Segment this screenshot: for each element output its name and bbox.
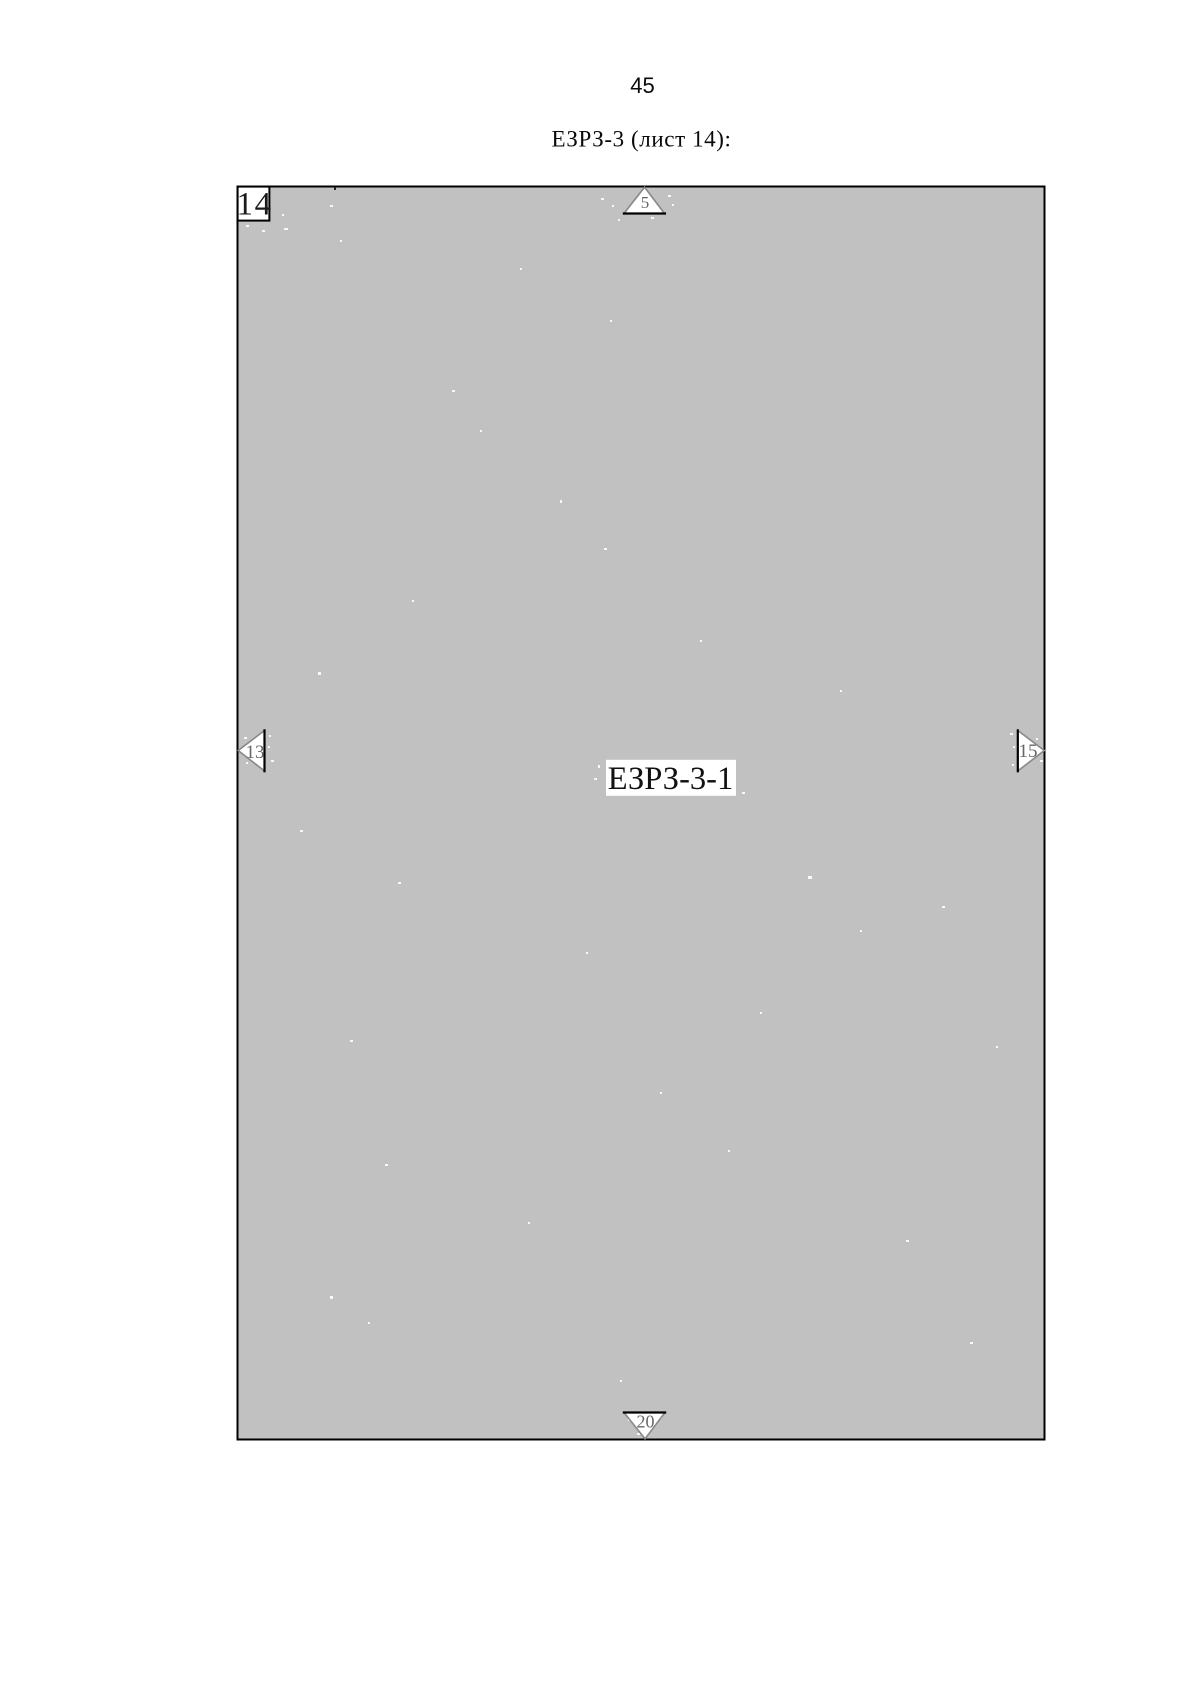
svg-text:13: 13 [246,742,265,763]
svg-text:5: 5 [641,193,650,212]
svg-text:15: 15 [1019,741,1038,762]
svg-text:ЕЗРЗ-3 (лист 14):: ЕЗРЗ-3 (лист 14): [551,127,731,152]
svg-text:45: 45 [630,73,654,98]
svg-text:ЕЗРЗ-3-1: ЕЗРЗ-3-1 [608,761,733,797]
svg-text:14: 14 [236,187,272,223]
svg-text:20: 20 [637,1412,655,1432]
